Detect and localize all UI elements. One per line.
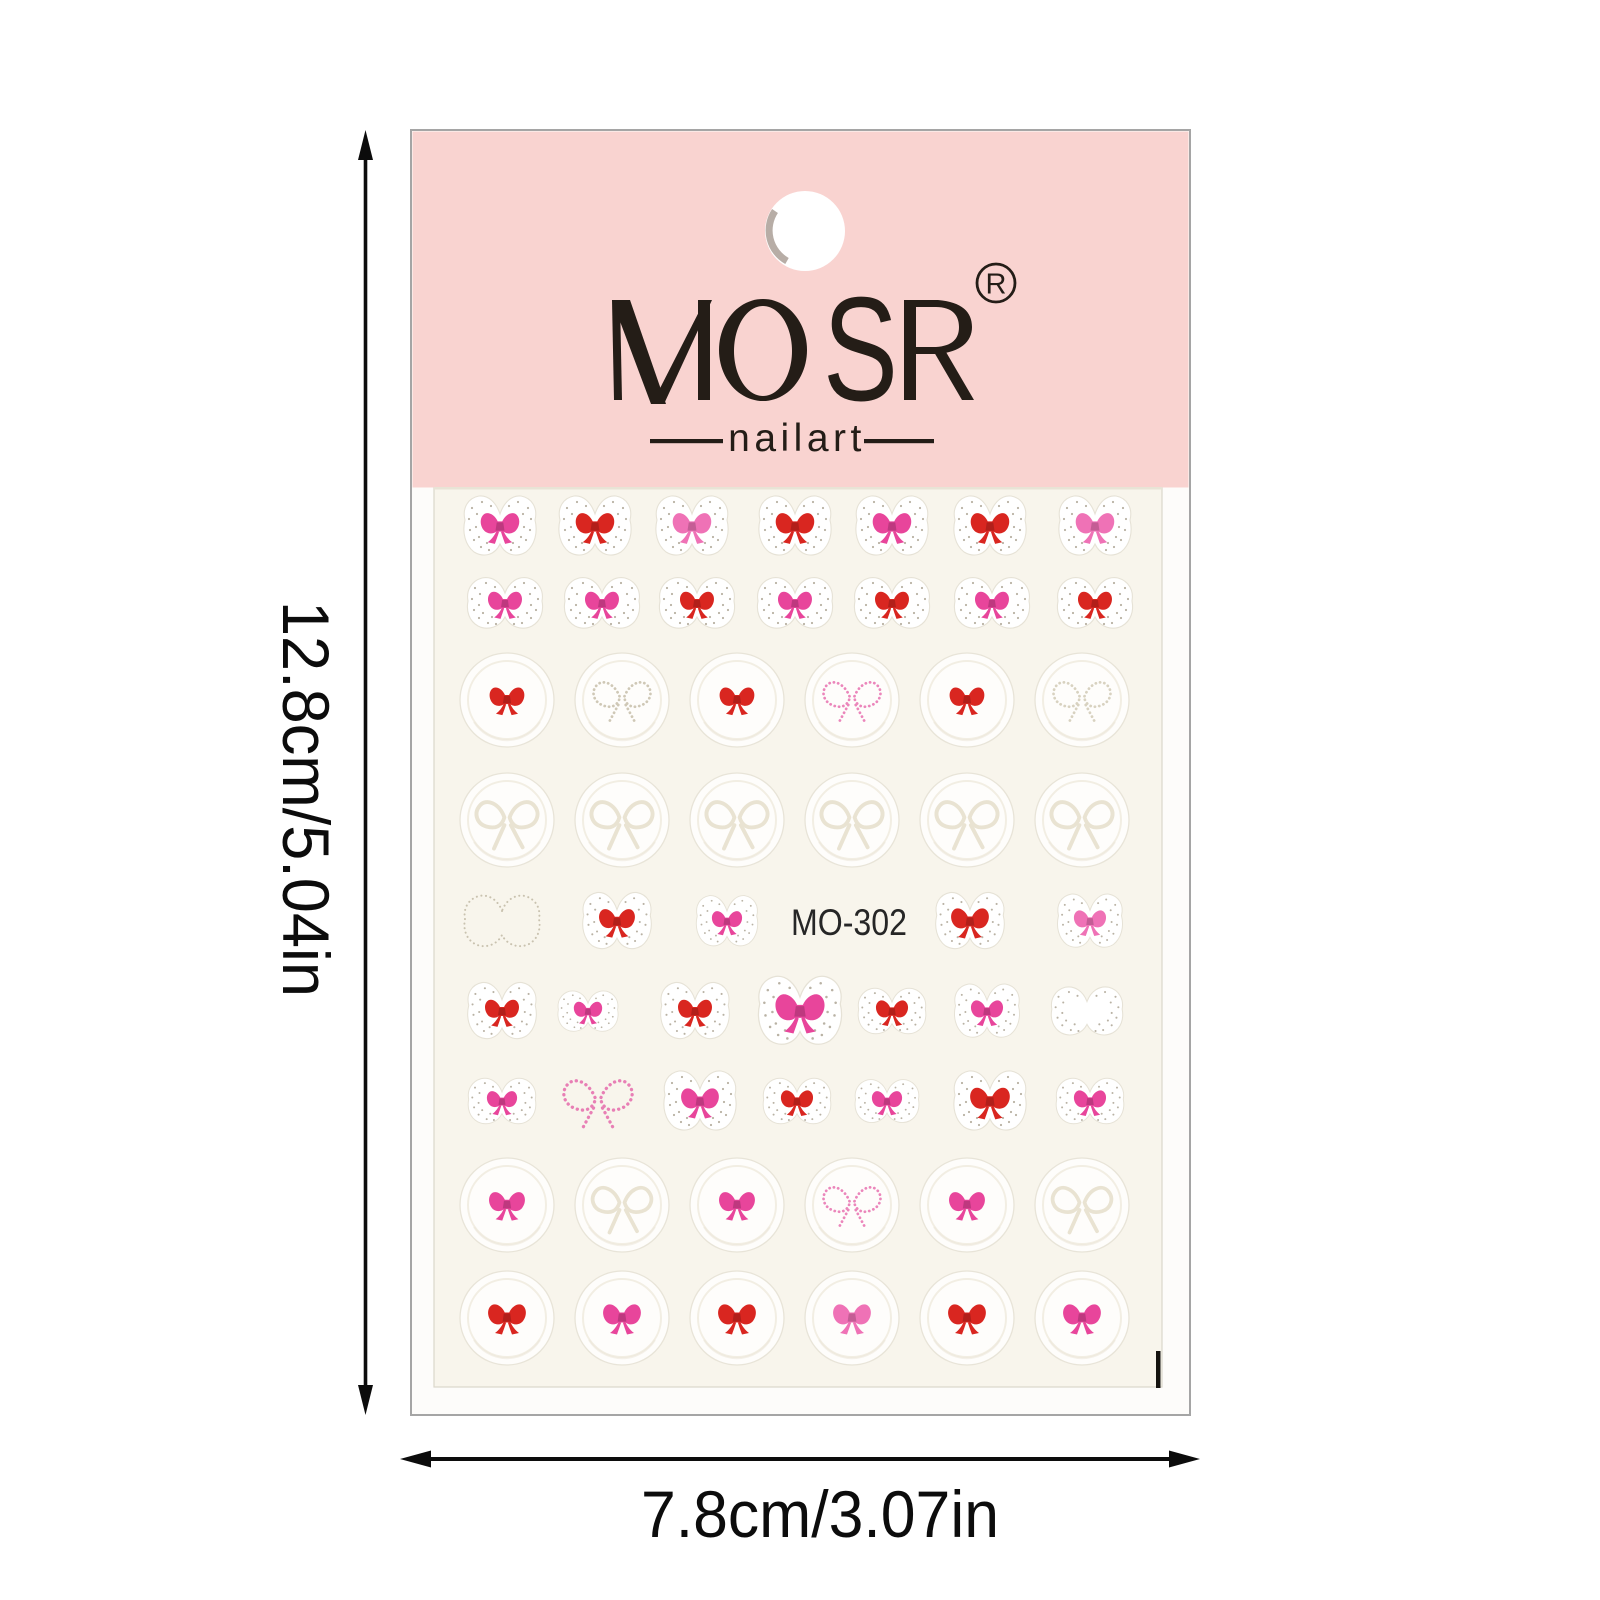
svg-text:12.8cm/5.04in: 12.8cm/5.04in bbox=[269, 601, 343, 997]
svg-text:R: R bbox=[986, 269, 1007, 301]
svg-text:MO-302: MO-302 bbox=[791, 902, 907, 943]
svg-text:7.8cm/3.07in: 7.8cm/3.07in bbox=[641, 1477, 999, 1551]
svg-text:nailart: nailart bbox=[728, 417, 866, 460]
svg-text:S: S bbox=[823, 267, 898, 432]
